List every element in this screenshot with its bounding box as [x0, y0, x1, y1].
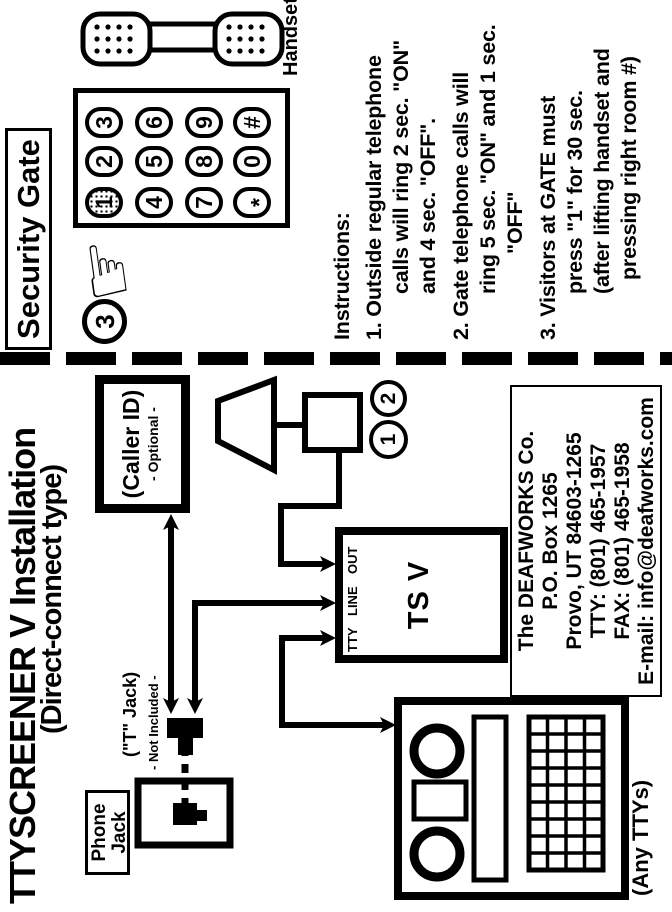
instruction-line: pressing right room #)	[616, 0, 643, 340]
keypad-key-3: 3	[85, 107, 123, 138]
wall-plate-icon	[138, 781, 230, 845]
tsv-port-out-label: OUT	[345, 547, 360, 574]
caller-id-label: (Caller ID)	[118, 384, 145, 504]
keypad-key-0: 0	[233, 146, 271, 177]
company-po-box: P.O. Box 1265	[539, 387, 563, 695]
callout-3: 3	[82, 299, 127, 344]
tsv-unit-name: TS V	[403, 535, 436, 655]
instruction-line: "OFF"	[502, 0, 529, 340]
keypad-key-4: 4	[135, 187, 173, 218]
keypad-key-2: 2	[85, 146, 123, 177]
keypad-key-star: *	[233, 187, 271, 218]
keypad-key-1: 1	[85, 187, 123, 218]
callout-2: 2	[370, 380, 407, 417]
rotated-sheet: TTYSCREENER V Installation (Direct-conne…	[0, 0, 672, 912]
keypad-key-6: 6	[135, 107, 173, 138]
phone-jack-label-box: Phone Jack	[85, 790, 130, 875]
handset-icon	[83, 14, 282, 64]
tty-device-icon	[398, 701, 625, 896]
instruction-line: ring 5 sec. "ON" and 1 sec.	[475, 0, 502, 340]
company-city: Provo, UT 84603-1265	[563, 387, 587, 695]
keypad-key-pound: #	[233, 107, 271, 138]
pointing-hand-icon: ☞	[66, 233, 146, 307]
ttyscreener-unit-box: TTY LINE OUT TS V	[335, 527, 508, 663]
security-gate-title-box: Security Gate	[5, 128, 52, 350]
t-jack-label: ("T" Jack)	[120, 672, 141, 757]
callout-1: 1	[369, 420, 408, 459]
instruction-line: calls will ring 2 sec. "ON"	[388, 0, 415, 340]
instructions-block: Instructions: 1. Outside regular telepho…	[329, 0, 643, 340]
company-email: E-mail: info@deafworks.com	[635, 387, 659, 695]
instruction-line: 1. Outside regular telephone	[361, 0, 388, 340]
company-tty: TTY: (801) 465-1957	[587, 387, 611, 695]
t-jack-not-included-label: - Not Included -	[146, 675, 161, 770]
company-name: The DEAFWORKS Co.	[515, 387, 539, 695]
keypad-key-5: 5	[135, 146, 173, 177]
company-fax: FAX: (801) 465-1958	[611, 387, 635, 695]
instructions-heading: Instructions:	[329, 0, 356, 340]
caller-id-box: (Caller ID) - Optional -	[95, 375, 190, 513]
instruction-line: 2. Gate telephone calls will	[448, 0, 475, 340]
keypad-key-8: 8	[185, 146, 223, 177]
keypad-key-7: 7	[185, 187, 223, 218]
caller-id-optional-label: - Optional -	[145, 384, 161, 504]
instruction-line: and 4 sec. "OFF".	[415, 0, 442, 340]
keypad-illustration: 1 2 3 4 5 6 7 8 9 * 0 #	[73, 88, 290, 228]
company-info-box: The DEAFWORKS Co. P.O. Box 1265 Provo, U…	[510, 385, 662, 697]
tsv-port-line-label: LINE	[345, 586, 360, 616]
phone-jack-label-line2: Jack	[110, 793, 130, 872]
instruction-line: press "1" for 30 sec.	[562, 0, 589, 340]
scanned-instruction-page: { "page": {"background": "#ffffff", "ink…	[0, 0, 672, 912]
tty-keyboard-grid	[529, 717, 603, 870]
tsv-port-tty-label: TTY	[345, 627, 360, 652]
keypad-key-9: 9	[185, 107, 223, 138]
phone-jack-label-line1: Phone	[90, 793, 110, 872]
any-ttys-label: (Any TTYs)	[628, 780, 654, 896]
t-jack-adapter-icon	[167, 718, 203, 755]
handset-label: Handset	[280, 0, 303, 76]
instruction-line: 3. Visitors at GATE must	[535, 0, 562, 340]
page-subtitle: (Direct-connect type)	[36, 465, 69, 734]
instruction-line: (after lifting handset and	[589, 0, 616, 340]
